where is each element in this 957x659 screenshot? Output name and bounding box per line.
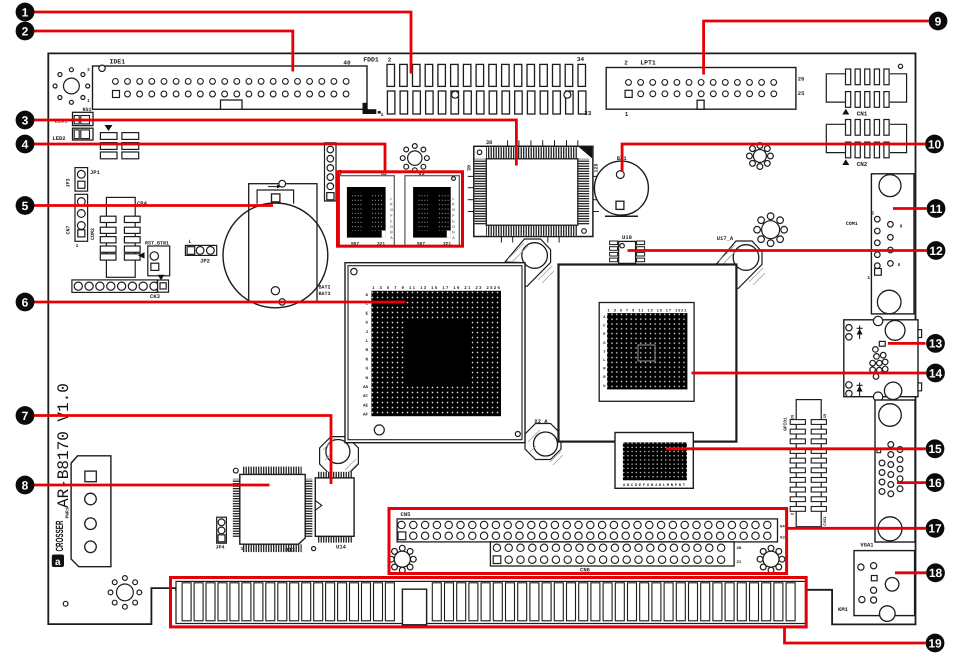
svg-text:L: L [188, 239, 191, 245]
svg-text:CN2: CN2 [857, 161, 868, 168]
svg-text:IDE1: IDE1 [110, 59, 126, 66]
svg-text:FDD1: FDD1 [363, 57, 379, 64]
svg-text:X2_A: X2_A [534, 418, 548, 425]
svg-text:2: 2 [388, 57, 392, 64]
svg-text:8: 8 [22, 478, 29, 492]
svg-text:26: 26 [798, 76, 805, 83]
svg-text:KM1: KM1 [838, 606, 849, 613]
svg-text:CN7: CN7 [66, 225, 72, 234]
svg-text:10: 10 [928, 137, 942, 151]
svg-text:5: 5 [22, 199, 29, 213]
svg-text:25: 25 [798, 90, 805, 97]
svg-text:1 3 5 7 9 11 13 15 17 19 21 23: 1 3 5 7 9 11 13 15 17 19 21 23 2526 [372, 286, 500, 291]
svg-text:13: 13 [929, 337, 943, 351]
svg-text:U14: U14 [336, 544, 347, 551]
svg-text:JP1: JP1 [90, 169, 101, 176]
svg-text:JP4: JP4 [215, 545, 224, 551]
svg-text:64: 64 [780, 525, 785, 530]
svg-text:3: 3 [22, 113, 29, 127]
svg-text:1: 1 [380, 112, 383, 118]
svg-text:AC: AC [363, 394, 369, 399]
svg-text:CN1: CN1 [857, 111, 868, 118]
svg-text:18: 18 [929, 566, 943, 580]
svg-text:JP2: JP2 [200, 258, 210, 265]
svg-text:2: 2 [22, 24, 29, 38]
svg-text:CROSSER: CROSSER [54, 520, 66, 551]
svg-text:CN5: CN5 [401, 511, 412, 518]
svg-text:39: 39 [467, 165, 473, 171]
svg-text:14: 14 [929, 366, 943, 380]
svg-text:16: 16 [928, 476, 942, 490]
svg-text:19: 19 [928, 636, 942, 650]
svg-text:40: 40 [343, 60, 351, 67]
svg-text:1: 1 [76, 244, 79, 249]
svg-text:4: 4 [22, 137, 29, 151]
svg-text:6: 6 [898, 262, 901, 268]
svg-text:1: 1 [240, 546, 243, 552]
svg-text:AF: AF [363, 413, 369, 418]
svg-text:JP3: JP3 [66, 178, 72, 187]
svg-text:34: 34 [577, 56, 585, 63]
svg-text:5: 5 [871, 212, 874, 217]
svg-text:ABCDEFGHJKLMNPRT: ABCDEFGHJKLMNPRT [623, 483, 686, 488]
svg-text:C4S1: C4S1 [823, 516, 828, 526]
svg-text:6: 6 [22, 295, 29, 309]
svg-text:BAT3: BAT3 [319, 291, 331, 297]
svg-text:38: 38 [486, 139, 493, 146]
svg-text:U17_A: U17_A [717, 235, 734, 242]
svg-text:9: 9 [935, 14, 942, 28]
svg-text:COM1: COM1 [846, 221, 858, 227]
svg-text:17: 17 [928, 522, 942, 536]
svg-text:U19: U19 [622, 234, 632, 241]
svg-text:7: 7 [22, 409, 29, 423]
svg-text:63: 63 [780, 536, 785, 541]
svg-text:GPIO1: GPIO1 [783, 417, 789, 431]
svg-text:21: 21 [737, 560, 742, 565]
svg-text:1 3 5 7 9 11 13 15 17 1921: 1 3 5 7 9 11 13 15 17 1921 [608, 309, 688, 314]
svg-text:15: 15 [928, 442, 942, 456]
svg-text:AR-B8170 V1.0: AR-B8170 V1.0 [55, 383, 73, 508]
svg-text:2: 2 [624, 60, 628, 67]
svg-text:AA: AA [363, 385, 369, 390]
svg-text:U13: U13 [285, 547, 296, 554]
svg-text:BAT2: BAT2 [319, 285, 331, 291]
svg-text:a: a [55, 557, 61, 568]
svg-text:COM2: COM2 [90, 228, 96, 240]
svg-text:J: J [603, 349, 605, 354]
svg-text:1: 1 [22, 5, 29, 19]
svg-text:1: 1 [867, 276, 870, 281]
svg-text:VGA1: VGA1 [860, 542, 874, 549]
svg-text:CK3: CK3 [150, 293, 161, 300]
svg-text:AE: AE [363, 403, 369, 408]
svg-text:128: 128 [594, 163, 600, 172]
svg-text:LPT1: LPT1 [640, 60, 656, 67]
svg-text:33: 33 [584, 110, 592, 117]
svg-text:RS1: RS1 [82, 107, 91, 113]
svg-text:20: 20 [791, 414, 796, 419]
svg-text:2: 2 [87, 67, 90, 73]
svg-text:40: 40 [737, 546, 742, 551]
svg-text:12: 12 [929, 244, 943, 258]
svg-text:1: 1 [87, 99, 90, 104]
svg-text:19: 19 [823, 413, 828, 418]
svg-text:11: 11 [930, 202, 943, 216]
svg-text:LED2: LED2 [52, 135, 65, 142]
svg-text:9: 9 [900, 224, 903, 230]
svg-text:1: 1 [625, 111, 629, 118]
